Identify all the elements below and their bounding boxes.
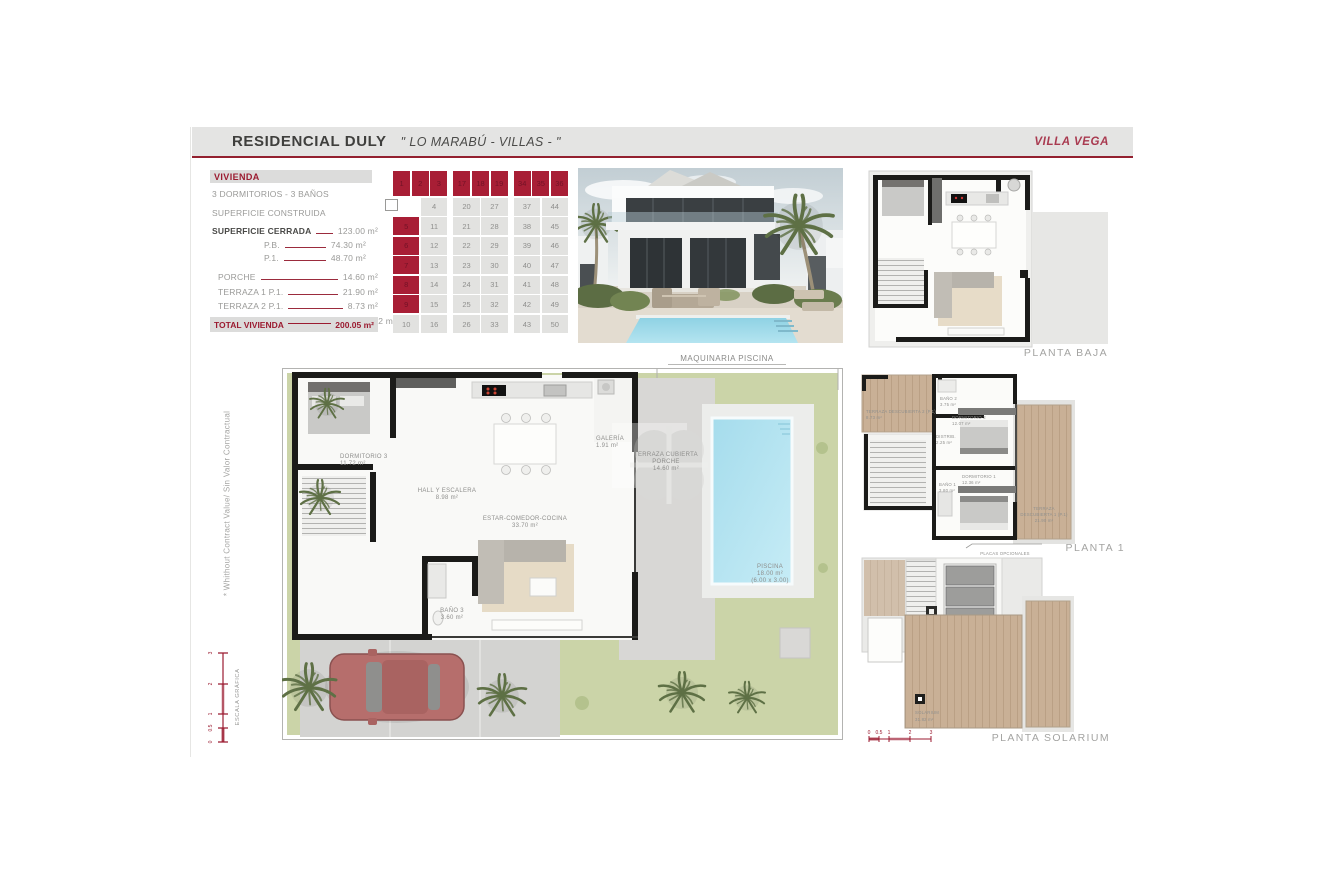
plot-cell: 46 — [542, 237, 568, 255]
page-title: RESIDENCIAL DULY — [232, 133, 387, 150]
plot-cell: 25 — [453, 295, 479, 313]
plot-grid: 1234511612713814915101617181920272128222… — [393, 171, 568, 333]
plot-cell: 27 — [481, 198, 507, 216]
plot-cell: 20 — [453, 198, 479, 216]
total-label: TOTAL VIVIENDA — [214, 320, 284, 330]
plot-cell: 40 — [514, 256, 540, 274]
svg-text:33.70 m²: 33.70 m² — [512, 523, 538, 529]
plot-cell: 16 — [421, 315, 447, 333]
planta-baja-plan — [868, 170, 1115, 362]
plot-cell: 1 — [393, 171, 410, 196]
plot-cell: 19 — [491, 171, 508, 196]
spec-row: P.1.48.70 m² — [212, 253, 366, 263]
plot-cell: 35 — [532, 171, 549, 196]
plot-cell: 44 — [542, 198, 568, 216]
spec-row: TERRAZA 2 P.1.8.73 m² — [212, 301, 378, 311]
plot-cell: 10 — [393, 315, 419, 333]
svg-text:ESTAR-COMEDOR-COCINA: ESTAR-COMEDOR-COCINA — [483, 516, 567, 522]
solarium-area: 31.82 m² — [915, 717, 934, 722]
svg-text:3.80 m²: 3.80 m² — [939, 488, 955, 493]
svg-text:0.5: 0.5 — [876, 730, 883, 736]
plot-cell: 34 — [514, 171, 531, 196]
plot-cell: 38 — [514, 217, 540, 235]
total-row: TOTAL VIVIENDA 200.05 m² — [210, 317, 378, 332]
plot-cell: 23 — [453, 256, 479, 274]
specs-section-title: VIVIENDA — [210, 170, 372, 183]
svg-text:3.60 m²: 3.60 m² — [441, 615, 463, 621]
spec-row: PORCHE14.60 m² — [212, 272, 378, 282]
spec-row: P.B.74.30 m² — [212, 240, 366, 250]
svg-text:TERRAZA CUBIERTA: TERRAZA CUBIERTA — [634, 452, 698, 458]
car — [325, 649, 469, 725]
svg-text:BAÑO 3: BAÑO 3 — [440, 607, 464, 614]
plot-cell: 6 — [393, 237, 419, 255]
svg-text:8.73 m²: 8.73 m² — [866, 415, 882, 420]
spec-rows: SUPERFICIE CERRADA123.00 m²P.B.74.30 m²P… — [212, 226, 378, 326]
svg-text:2: 2 — [909, 730, 912, 736]
brochure-page: RESIDENCIAL DULY " LO MARABÚ - VILLAS - … — [0, 0, 1320, 895]
svg-text:1.91 m²: 1.91 m² — [596, 443, 618, 449]
plot-cell: 3 — [430, 171, 447, 196]
plot-cell: 33 — [481, 315, 507, 333]
plot-cell: 17 — [453, 171, 470, 196]
svg-text:0.5: 0.5 — [208, 724, 214, 731]
plot-cell: 7 — [393, 256, 419, 274]
kitchen-island — [494, 424, 556, 464]
svg-text:BAÑO 2: BAÑO 2 — [940, 396, 957, 401]
svg-text:2.25 m²: 2.25 m² — [936, 440, 952, 445]
plot-cell: 26 — [453, 315, 479, 333]
grid-annotation-box — [385, 199, 398, 211]
svg-text:3: 3 — [930, 730, 933, 736]
plot-cell: 31 — [481, 276, 507, 294]
pool — [712, 418, 792, 584]
svg-text:DORMITORIO 2: DORMITORIO 2 — [952, 415, 986, 420]
built-surface-label: SUPERFICIE CONSTRUIDA — [212, 208, 378, 218]
plot-cell: 42 — [514, 295, 540, 313]
scale-caption: ESCALA GRÁFICA — [234, 669, 241, 726]
scale-bar: 0 0.5 1 2 3 ESCALA GRÁFICA — [203, 645, 247, 755]
plot-cell: 48 — [542, 276, 568, 294]
svg-text:DISTRIB.: DISTRIB. — [936, 434, 956, 439]
rooms-summary: 3 DORMITORIOS - 3 BAÑOS — [212, 189, 378, 199]
villa-name: VILLA VEGA — [1034, 136, 1109, 148]
svg-text:DORMITORIO 3: DORMITORIO 3 — [340, 454, 388, 460]
svg-text:21.90 m²: 21.90 m² — [1035, 518, 1054, 523]
page-edge — [190, 127, 191, 757]
plot-cell: 5 — [393, 217, 419, 235]
specs-list: 3 DORMITORIOS - 3 BAÑOS SUPERFICIE CONST… — [212, 189, 378, 326]
svg-text:TERRAZA: TERRAZA — [1033, 506, 1054, 511]
svg-text:DORMITORIO 1: DORMITORIO 1 — [962, 474, 996, 479]
plot-cell: 15 — [421, 295, 447, 313]
villa-building — [606, 170, 780, 292]
svg-text:1: 1 — [888, 730, 891, 736]
villa-render-photo — [578, 168, 843, 343]
plot-block: 12345116127138149151016 — [393, 171, 447, 333]
plot-cell: 36 — [551, 171, 568, 196]
site-plan: DORMITORIO 3 11.72 m² GALERÍA 1.91 m² HA… — [282, 368, 843, 740]
plot-cell: 37 — [514, 198, 540, 216]
svg-text:TERRAZA DESCUBIERTA 2 (P.1): TERRAZA DESCUBIERTA 2 (P.1) — [866, 409, 936, 414]
plot-cell: 12 — [421, 237, 447, 255]
spec-row: TERRAZA 1 P.1.21.90 m² — [212, 287, 378, 297]
plot-cell: 9 — [393, 295, 419, 313]
header-rule — [192, 156, 1133, 158]
total-value: 200.05 m² — [335, 320, 374, 330]
svg-text:18.00 m²: 18.00 m² — [757, 571, 783, 577]
plot-cell: 14 — [421, 276, 447, 294]
plot-cell: 21 — [453, 217, 479, 235]
planta-baja-caption: PLANTA BAJA — [1008, 347, 1108, 359]
stairs — [878, 258, 924, 304]
specs-section-title-text: VIVIENDA — [214, 172, 260, 182]
svg-text:0: 0 — [208, 740, 214, 743]
svg-text:11.72 m²: 11.72 m² — [340, 461, 366, 467]
svg-text:PORCHE: PORCHE — [652, 459, 679, 465]
plot-cell: 4 — [421, 198, 447, 216]
plot-cell: 22 — [453, 237, 479, 255]
plot-cell: 50 — [542, 315, 568, 333]
svg-text:8.98 m²: 8.98 m² — [436, 495, 458, 501]
planta-1-caption: PLANTA 1 — [1040, 542, 1125, 554]
planta-solarium-plan: SOLARIUM 31.82 m² — [860, 556, 1110, 748]
solarium-label: SOLARIUM — [915, 710, 939, 715]
plot-cell: 41 — [514, 276, 540, 294]
contract-footnote: * Whithout Contract Value/ Sin Valor Con… — [223, 384, 232, 624]
svg-text:12.36 m²: 12.36 m² — [962, 480, 981, 485]
plot-cell: 49 — [542, 295, 568, 313]
svg-text:3.75 m²: 3.75 m² — [940, 402, 956, 407]
page-subtitle: " LO MARABÚ - VILLAS - " — [401, 135, 561, 149]
plot-cell: 29 — [481, 237, 507, 255]
svg-text:HALL Y ESCALERA: HALL Y ESCALERA — [418, 488, 476, 494]
header: RESIDENCIAL DULY " LO MARABÚ - VILLAS - … — [192, 127, 1133, 156]
kitchen-island — [952, 222, 996, 248]
svg-text:PISCINA: PISCINA — [757, 564, 783, 570]
svg-text:BAÑO 1: BAÑO 1 — [939, 482, 956, 487]
planta-1-plan: TERRAZA DESCUBIERTA 2 (P.1) 8.73 m² BAÑO… — [860, 372, 1125, 558]
maquinaria-label: MAQUINARIA PISCINA — [668, 354, 786, 365]
plot-cell: 18 — [472, 171, 489, 196]
svg-text:12.07 m²: 12.07 m² — [952, 421, 971, 426]
svg-text:DESCUBIERTA 1 (P.1): DESCUBIERTA 1 (P.1) — [1020, 512, 1068, 517]
plot-block: 1718192027212822292330243125322633 — [453, 171, 507, 333]
plot-cell: 47 — [542, 256, 568, 274]
spec-row: SUPERFICIE CERRADA123.00 m² — [212, 226, 378, 236]
svg-text:3: 3 — [208, 651, 214, 654]
plot-cell: 13 — [421, 256, 447, 274]
terrace-deck — [1026, 601, 1070, 727]
svg-text:2: 2 — [208, 682, 214, 685]
plot-block: 3435363744384539464047414842494350 — [514, 171, 568, 333]
plot-cell: 8 — [393, 276, 419, 294]
plot-cell: 45 — [542, 217, 568, 235]
svg-text:GALERÍA: GALERÍA — [596, 435, 624, 442]
total-leader-line — [288, 323, 331, 324]
washer — [1008, 179, 1020, 191]
plot-cell: 39 — [514, 237, 540, 255]
plot-cell: 43 — [514, 315, 540, 333]
mini-scale-bar: 0 0.5 1 2 3 — [864, 728, 940, 746]
svg-text:(6.00 x 3.00): (6.00 x 3.00) — [751, 578, 789, 584]
plot-cell: 11 — [421, 217, 447, 235]
plot-cell: 28 — [481, 217, 507, 235]
plot-cell: 2 — [412, 171, 429, 196]
plot-cell: 30 — [481, 256, 507, 274]
svg-text:14.60 m²: 14.60 m² — [653, 466, 679, 472]
stairs — [870, 440, 926, 504]
planta-solarium-caption: PLANTA SOLARIUM — [985, 732, 1110, 744]
svg-text:0: 0 — [868, 730, 871, 736]
svg-text:1: 1 — [208, 712, 214, 715]
photo-pool — [626, 318, 798, 343]
plot-cell: 24 — [453, 276, 479, 294]
plot-cell: 32 — [481, 295, 507, 313]
